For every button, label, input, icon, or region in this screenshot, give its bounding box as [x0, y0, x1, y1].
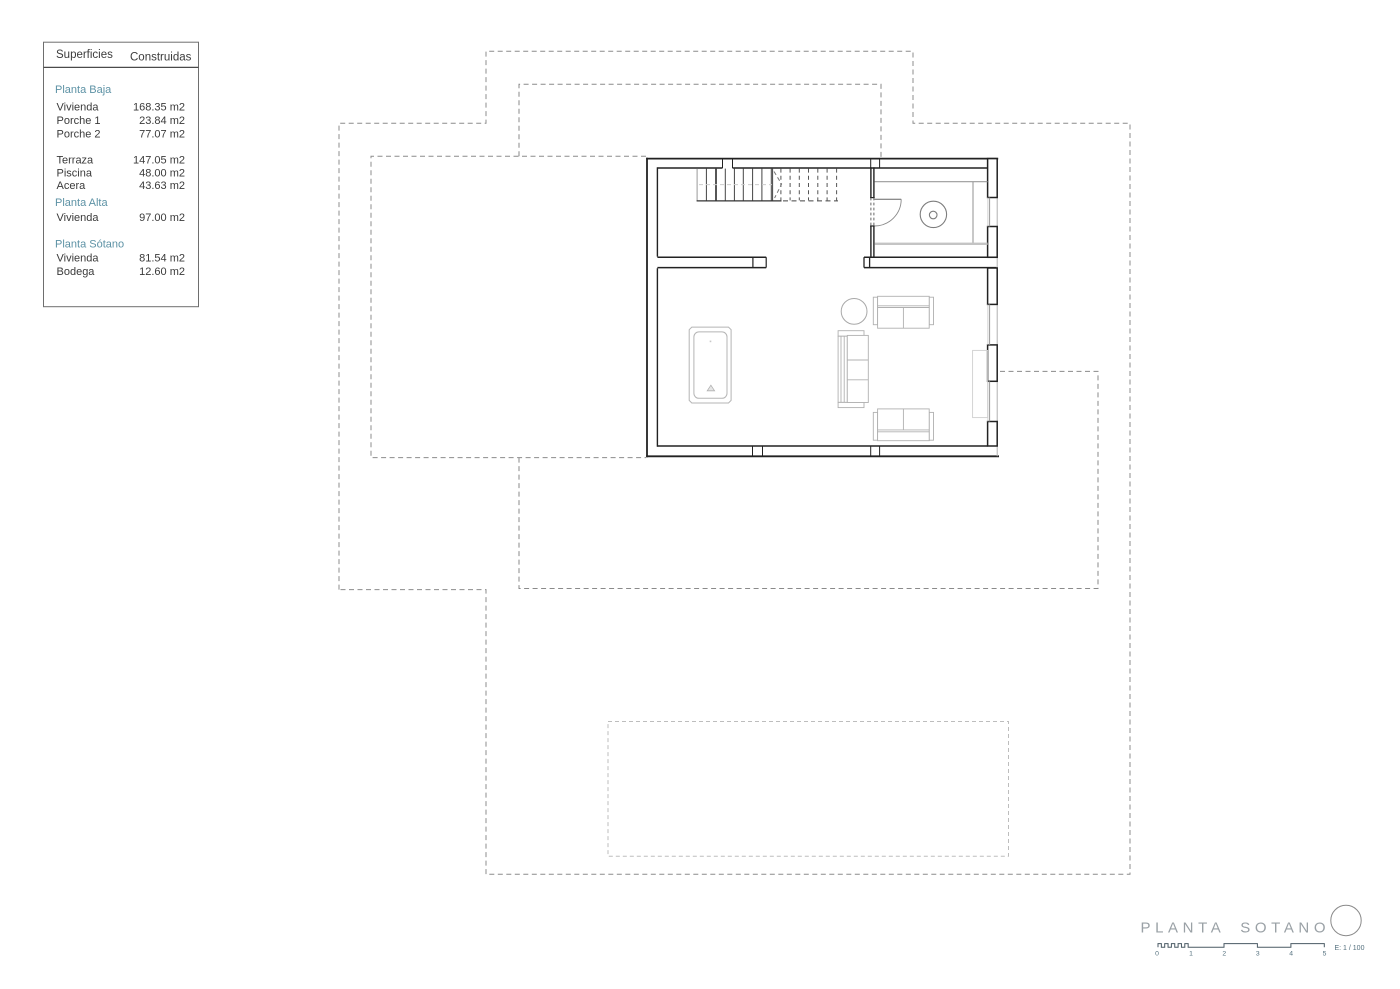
- svg-text:Porche 1: Porche 1: [57, 115, 101, 127]
- svg-text:Planta Alta: Planta Alta: [55, 197, 108, 209]
- svg-text:2: 2: [1222, 950, 1226, 957]
- svg-text:48.00 m2: 48.00 m2: [139, 167, 185, 179]
- svg-text:SOTANO: SOTANO: [1240, 919, 1330, 936]
- svg-text:43.63 m2: 43.63 m2: [139, 180, 185, 192]
- svg-text:97.00 m2: 97.00 m2: [139, 212, 185, 224]
- svg-text:Porche 2: Porche 2: [57, 128, 101, 140]
- svg-text:Planta Baja: Planta Baja: [55, 84, 112, 96]
- svg-text:Bodega: Bodega: [57, 266, 96, 278]
- svg-text:Construidas: Construidas: [130, 51, 192, 63]
- svg-text:1: 1: [1189, 950, 1193, 957]
- svg-text:3: 3: [1256, 950, 1260, 957]
- svg-text:81.54 m2: 81.54 m2: [139, 253, 185, 265]
- svg-text:77.07 m2: 77.07 m2: [139, 128, 185, 140]
- svg-text:168.35 m2: 168.35 m2: [133, 102, 185, 114]
- svg-text:Piscina: Piscina: [57, 167, 93, 179]
- svg-text:Acera: Acera: [57, 180, 87, 192]
- svg-text:23.84 m2: 23.84 m2: [139, 115, 185, 127]
- svg-text:Vivienda: Vivienda: [57, 102, 100, 114]
- svg-text:Superficies: Superficies: [56, 49, 113, 61]
- svg-text:4: 4: [1289, 950, 1293, 957]
- svg-text:PLANTA: PLANTA: [1141, 919, 1226, 936]
- svg-text:0: 0: [1155, 950, 1159, 957]
- svg-text:12.60 m2: 12.60 m2: [139, 266, 185, 278]
- svg-text:Terraza: Terraza: [57, 154, 95, 166]
- svg-text:147.05 m2: 147.05 m2: [133, 154, 185, 166]
- svg-text:E: 1 / 100: E: 1 / 100: [1335, 945, 1365, 952]
- svg-text:Vivienda: Vivienda: [57, 212, 100, 224]
- svg-text:Planta Sótano: Planta Sótano: [55, 238, 124, 250]
- svg-text:Vivienda: Vivienda: [57, 253, 100, 265]
- svg-text:5: 5: [1323, 950, 1327, 957]
